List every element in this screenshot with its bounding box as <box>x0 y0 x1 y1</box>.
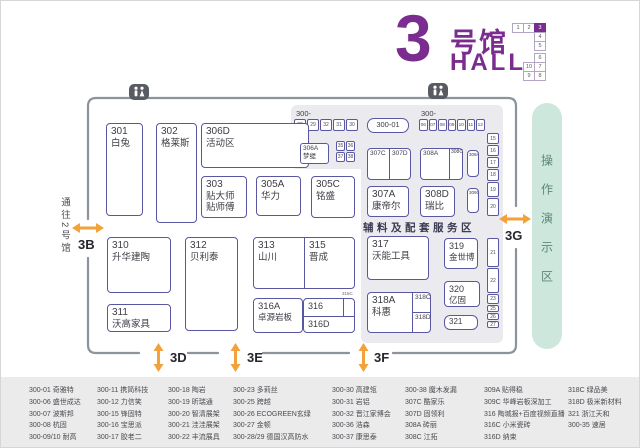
booth-318A: 318A 科惠 <box>368 293 412 332</box>
booth-321: 321 <box>444 315 478 330</box>
booth-cell: 19 <box>487 182 499 197</box>
booth-306A: 306A 梦缇 <box>300 143 329 164</box>
booth-316C-cell <box>343 299 354 316</box>
booth-cell: 06 <box>419 119 428 131</box>
booth-307A: 307A 康帝尔 <box>367 186 409 217</box>
legend-entry: 300-31 岩铝 <box>332 397 391 409</box>
booth-cell: 23 <box>487 294 499 304</box>
booth-cell: 12 <box>476 119 485 131</box>
booth-cell: 16 <box>487 145 499 156</box>
booth-cell: 26 <box>487 313 499 320</box>
column-cells-upper: 151617181920 <box>487 133 499 216</box>
booth-cell: 35 <box>336 141 345 151</box>
legend-entry: 309C 华峰岩板深加工 <box>484 397 565 409</box>
booth-cell: 08 <box>438 119 447 131</box>
legend-entry: 300-19 昕瑞通 <box>168 397 220 409</box>
legend-entry: 316D 纳束 <box>484 432 565 444</box>
booth-cell: 17 <box>487 157 499 168</box>
booth-318A-group: 318A 科惠 318C 318D <box>367 292 431 333</box>
booth-cell: 36 <box>346 141 355 151</box>
booth-cell: 11 <box>467 119 476 131</box>
restroom-icon <box>428 83 448 99</box>
service-area-label: 辅料及配套服务区 <box>363 220 475 235</box>
strip-label-300-left: 300- <box>296 109 311 118</box>
booth-cell: 31 <box>333 119 345 131</box>
booth-316A: 316A 卓源岩板 <box>253 298 303 333</box>
legend-entry: 309A 贴得稳 <box>484 385 565 397</box>
booth-318D: 318D <box>412 313 431 332</box>
booth-cell: 38 <box>346 152 355 162</box>
booth-319: 319 金世博 <box>444 238 478 269</box>
legend-entry: 300-18 陶岩 <box>168 385 220 397</box>
legend-entry: 300-25 跨越 <box>233 397 311 409</box>
legend-entry: 300-17 胶老二 <box>97 432 148 444</box>
legend-entry: 300-32 晋江家博会 <box>332 409 391 421</box>
gate-3E-label: 3E <box>247 350 263 365</box>
booth-308A: 308A <box>421 149 449 179</box>
legend-entry: 300-21 洼洼展架 <box>168 420 220 432</box>
booth-306D: 306D 活动区 <box>201 123 309 168</box>
booth-316-group: 316 316D <box>303 298 355 333</box>
legend-entry: 300-20 智清展架 <box>168 409 220 421</box>
booth-cell: 09 <box>448 119 457 131</box>
booth-312: 312 贝利泰 <box>185 237 238 331</box>
booth-320: 320 亿固 <box>444 281 480 307</box>
gate-3D-arrow <box>151 342 166 373</box>
booth-cell: 10 <box>457 119 466 131</box>
corridor-to-hall2-label: 通往2号馆 <box>57 197 71 255</box>
legend-entry: 300-30 高建瓴 <box>332 385 391 397</box>
gate-3B-label: 3B <box>78 237 95 252</box>
booth-316C-label: 316C <box>342 291 353 296</box>
booth-310: 310 升华建陶 <box>107 237 171 293</box>
booth-307C: 307C <box>368 149 389 179</box>
legend-entry: 300-07 波斯邦 <box>29 409 81 421</box>
legend-entry: 300-37 康思泰 <box>332 432 391 444</box>
booth-305A: 305A 华力 <box>256 176 301 216</box>
legend-column-2: 300-11 携简科技300-12 力信笑300-15 锋固特300-16 宝思… <box>97 385 148 444</box>
legend-column-7: 309A 贴得稳309C 华峰岩板深加工316 陶城报+百度视频直播316C 小… <box>484 385 565 444</box>
hall-number: 3 <box>395 5 432 71</box>
hall-map: 3 号馆 HALL 1 2 3 4 5 6 10 7 9 8 <box>0 0 640 448</box>
gate-3E-arrow <box>228 342 243 373</box>
minimap-cell: 8 <box>534 71 546 81</box>
legend-column-5: 300-30 高建瓴300-31 岩铝300-32 晋江家博会300-36 浩森… <box>332 385 391 444</box>
booth-309A: 309A <box>467 150 479 177</box>
booth-315: 315 晋成 <box>304 238 355 288</box>
hall-index-minimap: 1 2 3 4 5 6 10 7 9 8 <box>512 23 548 81</box>
legend-entry: 316 陶城报+百度视频直播 <box>484 409 565 421</box>
legend-column-8: 318C 绿品美318D 极米新材料321 浙江天和300-35 速居 <box>568 385 622 432</box>
booth-309C: 309C <box>467 188 479 213</box>
booth-cell: 27 <box>487 321 499 328</box>
booth-308D: 308D 瑞比 <box>420 186 455 217</box>
booth-311: 311 沃高家具 <box>107 304 171 332</box>
legend-entry: 300-11 携简科技 <box>97 385 148 397</box>
booth-300-01: 300-01 <box>367 118 409 133</box>
legend-entry: 321 浙江天和 <box>568 409 622 421</box>
booth-305C: 305C 铭盛 <box>311 176 355 218</box>
booth-cell: 18 <box>487 169 499 181</box>
gate-3D-label: 3D <box>170 350 187 365</box>
legend-entry: 300-09/10 耐高 <box>29 432 81 444</box>
legend-entry: 318C 绿品美 <box>568 385 622 397</box>
demo-area-label: 操作演示区 <box>539 154 556 299</box>
legend-entry: 300-23 多莉丝 <box>233 385 311 397</box>
legend-entry: 307D 固领利 <box>405 409 457 421</box>
legend-entry: 300-15 锋固特 <box>97 409 148 421</box>
booth-307D: 307D <box>389 149 411 179</box>
booth-cell: 15 <box>487 133 499 144</box>
column-cells-lower: 212223252627 <box>487 238 499 328</box>
booth-308A-308C: 308A 308C <box>420 148 463 180</box>
booth-302: 302 格莱斯 <box>156 123 197 223</box>
legend-entry: 308A 砖丽 <box>405 420 457 432</box>
legend-column-4: 300-23 多莉丝300-25 跨越300-26 ECOGREEN玄绿300-… <box>233 385 311 444</box>
legend-entry: 300-26 ECOGREEN玄绿 <box>233 409 311 421</box>
booth-cell: 37 <box>336 152 345 162</box>
minimap-cell: 5 <box>534 41 546 51</box>
legend-entry: 300-36 浩森 <box>332 420 391 432</box>
strip-300-right: 06070809101112 <box>419 119 485 131</box>
gate-3F-label: 3F <box>374 350 389 365</box>
booth-301: 301 白兔 <box>106 123 143 216</box>
booth-313: 313 山川 <box>254 238 304 288</box>
booth-313-315: 313 山川 315 晋成 <box>253 237 355 289</box>
legend-entry: 300-12 力信笑 <box>97 397 148 409</box>
legend-entry: 300-35 速居 <box>568 420 622 432</box>
booth-316: 316 <box>304 299 343 316</box>
booth-303: 303 贴大师 贴师傅 <box>201 176 247 218</box>
gate-3G-label: 3G <box>505 228 522 243</box>
legend-entry: 307C 酷家乐 <box>405 397 457 409</box>
booth-318C: 318C <box>412 293 431 313</box>
demo-area-bar: 操作演示区 <box>532 103 562 349</box>
booth-legend: 300-01 奇雅特300-06 盛世成达300-07 波斯邦300-08 杭固… <box>1 377 640 448</box>
booth-cell: 22 <box>487 268 499 293</box>
gate-3B-arrow <box>71 221 105 235</box>
booth-cell: 07 <box>429 119 438 131</box>
legend-column-6: 300-38 魔木发漏307C 酷家乐307D 固领利308A 砖丽308C 江… <box>405 385 457 444</box>
legend-entry: 318D 极米新材料 <box>568 397 622 409</box>
booth-307C-307D: 307C 307D <box>367 148 411 180</box>
booth-cell: 25 <box>487 305 499 312</box>
booth-cell: 32 <box>320 119 332 131</box>
legend-entry: 300-28/29 德国汉高防水 <box>233 432 311 444</box>
legend-entry: 300-16 宝思派 <box>97 420 148 432</box>
legend-entry: 300-38 魔木发漏 <box>405 385 457 397</box>
legend-column-3: 300-18 陶岩300-19 昕瑞通300-20 智清展架300-21 洼洼展… <box>168 385 220 444</box>
legend-entry: 300-27 金顿 <box>233 420 311 432</box>
grid-35-38: 35363738 <box>336 141 355 162</box>
gate-3F-arrow <box>356 342 371 373</box>
gate-3G-arrow <box>498 212 532 226</box>
legend-entry: 300-22 丰流展具 <box>168 432 220 444</box>
booth-316D: 316D <box>304 316 354 332</box>
booth-317: 317 沃能工具 <box>367 236 429 280</box>
legend-entry: 300-08 杭固 <box>29 420 81 432</box>
booth-cell: 30 <box>346 119 358 131</box>
legend-entry: 316C 小米瓷砖 <box>484 420 565 432</box>
booth-cell: 21 <box>487 238 499 267</box>
legend-entry: 300-06 盛世成达 <box>29 397 81 409</box>
restroom-icon <box>129 84 149 100</box>
legend-entry: 300-01 奇雅特 <box>29 385 81 397</box>
legend-entry: 308C 江拓 <box>405 432 457 444</box>
strip-label-300-right: 300- <box>421 109 436 118</box>
legend-column-1: 300-01 奇雅特300-06 盛世成达300-07 波斯邦300-08 杭固… <box>29 385 81 444</box>
booth-308C: 308C <box>449 149 463 179</box>
